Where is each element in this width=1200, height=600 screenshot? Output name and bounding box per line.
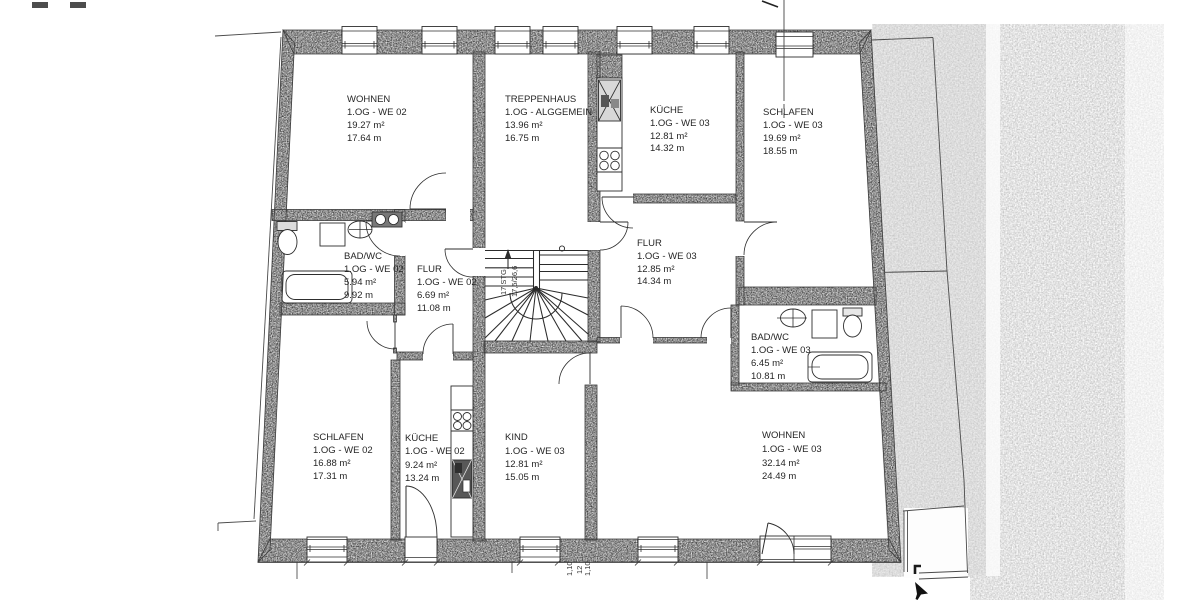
svg-text:9.92 m: 9.92 m [344,290,373,301]
svg-text:KÜCHE: KÜCHE [405,433,438,444]
svg-text:SCHLAFEN: SCHLAFEN [313,432,364,443]
svg-text:12.85 m²: 12.85 m² [637,264,675,275]
svg-text:24.49 m: 24.49 m [762,471,796,482]
svg-text:10.81 m: 10.81 m [751,371,785,382]
svg-text:14.32 m: 14.32 m [650,143,684,154]
svg-text:1.OG - WE 02: 1.OG - WE 02 [344,264,404,275]
svg-text:9.24 m²: 9.24 m² [405,460,437,471]
svg-text:1.OG - ALGGEMEIN: 1.OG - ALGGEMEIN [505,107,592,118]
svg-text:1.OG - WE 02: 1.OG - WE 02 [347,107,407,118]
svg-text:11.08 m: 11.08 m [417,303,451,314]
svg-text:1.OG - WE 02: 1.OG - WE 02 [313,445,373,456]
svg-text:17.64 m: 17.64 m [347,133,381,144]
svg-text:15.05 m: 15.05 m [505,472,539,483]
svg-text:FLUR: FLUR [637,238,662,249]
svg-text:1.OG - WE 03: 1.OG - WE 03 [751,345,811,356]
svg-text:SCHLAFEN: SCHLAFEN [763,107,814,118]
svg-text:18.55 m: 18.55 m [763,146,797,157]
svg-text:13.24 m: 13.24 m [405,473,439,484]
svg-text:32.14 m²: 32.14 m² [762,458,800,469]
svg-text:17 STG: 17 STG [499,269,508,295]
svg-text:14.34 m: 14.34 m [637,276,671,287]
svg-text:16.75 m: 16.75 m [505,133,539,144]
svg-text:WOHNEN: WOHNEN [347,94,390,105]
svg-text:1,10: 1,10 [565,561,574,576]
svg-text:WOHNEN: WOHNEN [762,430,805,441]
svg-text:KÜCHE: KÜCHE [650,105,683,116]
svg-text:1.OG - WE 03: 1.OG - WE 03 [505,446,565,457]
svg-text:1,10: 1,10 [583,561,592,576]
svg-text:1.OG - WE 03: 1.OG - WE 03 [762,444,822,455]
svg-text:6.69 m²: 6.69 m² [417,290,449,301]
svg-text:12.81 m²: 12.81 m² [505,459,543,470]
svg-text:FLUR: FLUR [417,264,442,275]
svg-text:16.88 m²: 16.88 m² [313,458,351,469]
svg-text:1.OG - WE 02: 1.OG - WE 02 [405,446,465,457]
svg-text:17.31 m: 17.31 m [313,471,347,482]
svg-text:TREPPENHAUS: TREPPENHAUS [505,94,576,105]
svg-text:BAD/WC: BAD/WC [344,251,382,262]
svg-text:BAD/WC: BAD/WC [751,332,789,343]
svg-text:1.OG - WE 03: 1.OG - WE 03 [650,118,710,129]
svg-text:1.OG - WE 02: 1.OG - WE 02 [417,277,477,288]
svg-text:6.45 m²: 6.45 m² [751,358,783,369]
svg-text:17,5/26,6: 17,5/26,6 [510,266,519,297]
svg-text:19.69 m²: 19.69 m² [763,133,801,144]
svg-text:19.27 m²: 19.27 m² [347,120,385,131]
svg-text:1.OG - WE 03: 1.OG - WE 03 [637,251,697,262]
svg-text:13.96 m²: 13.96 m² [505,120,543,131]
svg-text:KIND: KIND [505,432,528,443]
svg-text:1.OG - WE 03: 1.OG - WE 03 [763,120,823,131]
svg-text:5.94 m²: 5.94 m² [344,277,376,288]
svg-text:12.81 m²: 12.81 m² [650,131,688,142]
